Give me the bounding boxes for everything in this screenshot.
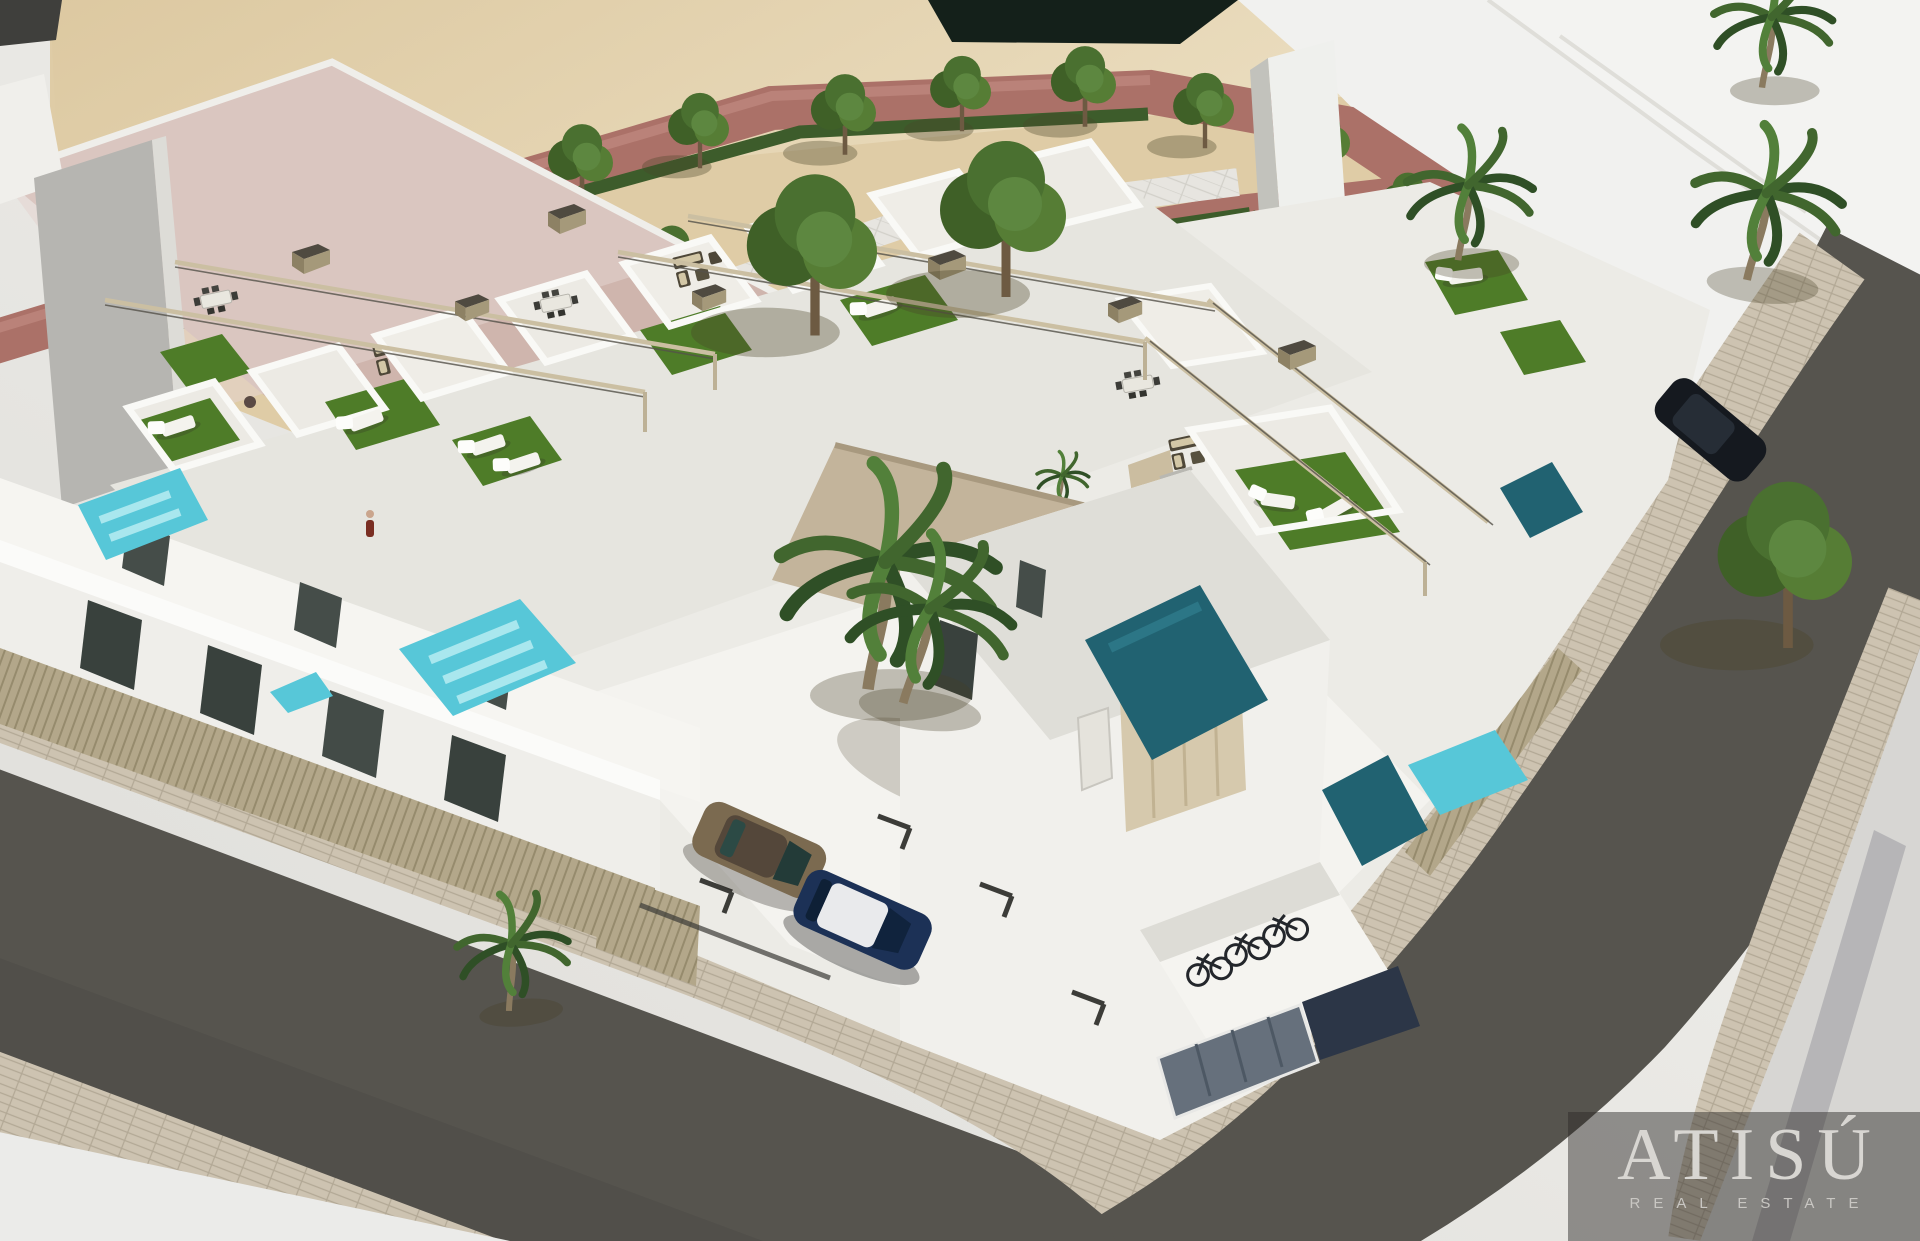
entry-door <box>1078 708 1112 790</box>
watermark-brand: ATISÚ <box>1606 1116 1882 1194</box>
architectural-render: ATISÚ REAL ESTATE <box>0 0 1920 1241</box>
render-scene <box>0 0 1920 1241</box>
person-figure <box>366 510 374 537</box>
watermark: ATISÚ REAL ESTATE <box>1568 1112 1920 1241</box>
roof-drain <box>244 396 256 408</box>
watermark-tagline: REAL ESTATE <box>1617 1195 1872 1212</box>
dark-corner-sliver <box>0 0 62 46</box>
